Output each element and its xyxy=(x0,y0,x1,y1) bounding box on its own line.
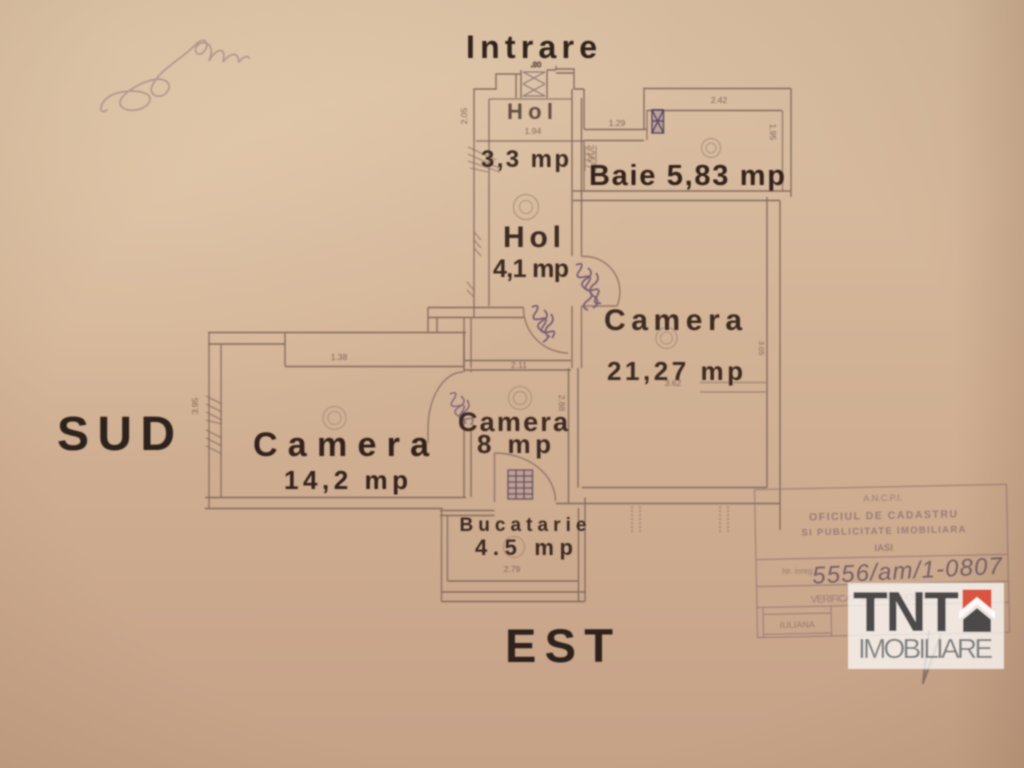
svg-text:1.95: 1.95 xyxy=(768,124,778,141)
svg-text:4,1 mp: 4,1 mp xyxy=(493,255,569,283)
svg-text:Nr. inreg.: Nr. inreg. xyxy=(782,566,815,576)
svg-text:21,27 mp: 21,27 mp xyxy=(607,356,743,386)
svg-text:A.N.C.P.I.: A.N.C.P.I. xyxy=(863,493,902,504)
svg-text:2.05: 2.05 xyxy=(459,107,469,124)
svg-text:Baie 5,83 mp: Baie 5,83 mp xyxy=(589,160,785,192)
svg-text:EST: EST xyxy=(505,619,613,672)
svg-text:Hol: Hol xyxy=(507,99,553,124)
svg-text:2.11: 2.11 xyxy=(511,360,527,370)
svg-text:3.95: 3.95 xyxy=(190,397,200,414)
svg-text:IMOBILIARE: IMOBILIARE xyxy=(858,633,993,664)
svg-text:Hol: Hol xyxy=(503,221,561,254)
svg-text:IASI: IASI xyxy=(874,543,893,554)
svg-text:1.29: 1.29 xyxy=(609,118,626,128)
svg-text:2.79: 2.79 xyxy=(504,564,521,574)
svg-text:8 mp: 8 mp xyxy=(477,429,551,459)
svg-text:.90: .90 xyxy=(531,60,541,69)
svg-text:3,3 mp: 3,3 mp xyxy=(481,146,569,173)
svg-text:3.05: 3.05 xyxy=(757,341,766,356)
svg-text:IULIANA: IULIANA xyxy=(780,619,815,630)
svg-text:2.42: 2.42 xyxy=(711,95,728,105)
svg-text:SUD: SUD xyxy=(57,408,175,461)
svg-text:1.38: 1.38 xyxy=(331,352,348,362)
svg-text:1.94: 1.94 xyxy=(525,126,542,136)
